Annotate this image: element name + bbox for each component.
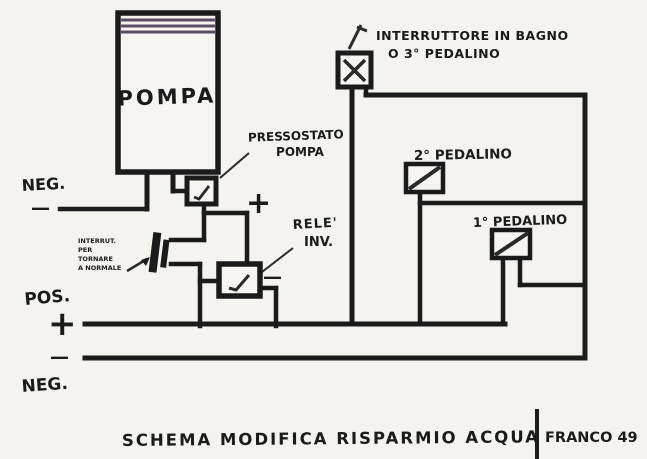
bathroom-switch: INTERRUTTORE IN BAGNO O 3° PEDALINO xyxy=(338,25,569,87)
bathroom-switch-label-1: INTERRUTTORE IN BAGNO xyxy=(376,28,569,43)
plug-bar-icon xyxy=(149,232,162,273)
pedal-2: 2° PEDALINO xyxy=(406,146,512,192)
author-signature: FRANCO 49 xyxy=(545,430,638,446)
relay-box xyxy=(219,264,260,296)
neg-top-label: NEG. xyxy=(21,174,65,195)
note-arrowhead-icon xyxy=(141,257,150,266)
pressure-switch-label-2: POMPA xyxy=(276,145,325,159)
pressure-switch-box xyxy=(187,178,216,204)
note-line-2: PER xyxy=(78,246,92,254)
plus-mid-symbol: + xyxy=(246,186,271,221)
caption: SCHEMA MODIFICA RISPARMIO ACQUA xyxy=(122,427,540,450)
neg-top-dash: — xyxy=(31,197,50,219)
schematic-canvas: POMPA xyxy=(0,0,647,459)
note-line-1: INTERRUT. xyxy=(78,237,116,245)
relay-label-2: INV. xyxy=(304,235,333,250)
pressure-switch-leader xyxy=(220,153,249,178)
title-block: SCHEMA MODIFICA RISPARMIO ACQUA FRANCO 4… xyxy=(122,411,638,457)
plug-bar-icon xyxy=(160,239,169,268)
return-plug xyxy=(149,232,171,274)
relay-label-1: RELE' xyxy=(292,216,338,233)
neg-bottom-label: NEG. xyxy=(21,374,69,397)
pedal-2-label: 2° PEDALINO xyxy=(414,146,512,164)
hand-drawn-schematic: POMPA xyxy=(0,0,647,459)
neg-bottom-dash: — xyxy=(50,346,69,368)
note-line-4: A NORMALE xyxy=(78,264,121,272)
return-plug-note: INTERRUT. PER TORNARE A NORMALE xyxy=(78,237,150,272)
note-line-3: TORNARE xyxy=(78,255,113,263)
pump-box: POMPA xyxy=(117,13,218,172)
pos-plus-symbol: + xyxy=(48,304,77,344)
bathroom-switch-label-2: O 3° PEDALINO xyxy=(388,46,500,61)
pressure-switch-label-1: PRESSOSTATO xyxy=(248,127,344,144)
pedal-1: 1° PEDALINO xyxy=(473,213,568,258)
pump-label: POMPA xyxy=(117,83,217,110)
